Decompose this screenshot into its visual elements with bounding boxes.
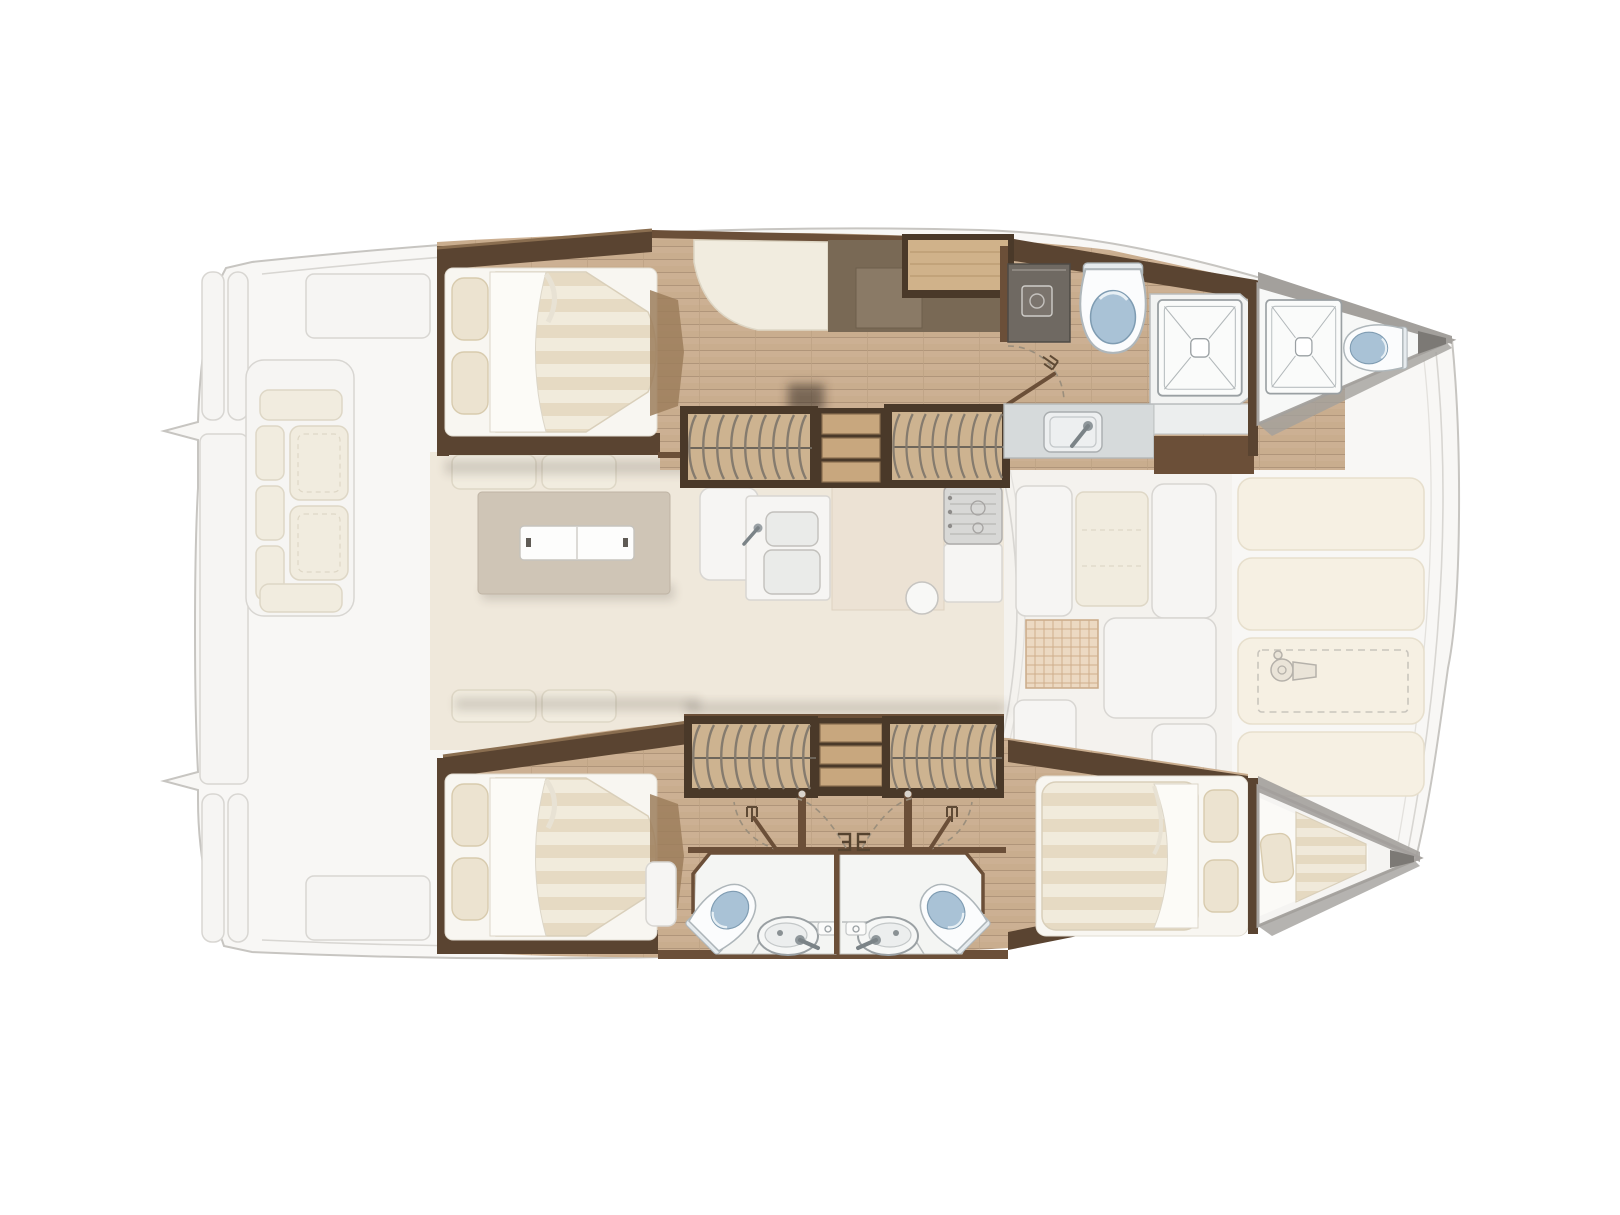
stbd-forward-cabin (1036, 776, 1258, 936)
transom-step (228, 272, 248, 420)
deck-locker (306, 876, 430, 940)
stbd-bathroom-forward (838, 853, 993, 957)
sunpad (1238, 638, 1424, 724)
shower-tray (1266, 300, 1341, 394)
pillow (452, 858, 488, 920)
bathroom-divider (834, 853, 840, 954)
galley-sink-basin (766, 512, 818, 546)
door-post (904, 792, 912, 852)
companionway-steps (818, 408, 884, 488)
deck-locker (306, 274, 430, 338)
vanity (1004, 404, 1154, 458)
pillow (452, 784, 488, 846)
port-aft-cabin (445, 268, 684, 436)
pillow (1204, 860, 1238, 912)
washbasin (758, 917, 818, 955)
port-hull (437, 230, 1452, 488)
swim-platform (200, 434, 248, 784)
washbasin (858, 917, 918, 955)
galley (744, 486, 1002, 614)
cockpit-seat (1016, 486, 1072, 616)
cockpit-cream-seat (1076, 492, 1148, 606)
hanging-locker (884, 404, 1010, 488)
galley-sink-basin (764, 550, 820, 594)
catamaran-layout-plan (0, 0, 1620, 1215)
toilet (1080, 263, 1146, 353)
pillow (1260, 833, 1295, 884)
hull-shadow (455, 698, 700, 710)
sofa-back-cushion (256, 486, 284, 540)
sunpad (1238, 478, 1424, 550)
hull-shadow (686, 702, 1006, 714)
stove (944, 486, 1002, 544)
companionway-steps (816, 718, 886, 796)
transom-step (202, 794, 224, 942)
cabin-seat (646, 862, 676, 926)
floorplan-canvas (0, 0, 1620, 1215)
sofa-cushion (260, 584, 342, 612)
door-post (798, 792, 806, 852)
aft-cockpit-sofa (246, 360, 354, 616)
sofa-back-cushion (256, 426, 284, 480)
round-basin (906, 582, 938, 614)
transom-step (202, 272, 224, 420)
pillow (1204, 790, 1238, 842)
hanging-locker (882, 716, 1004, 798)
sofa-cushion (260, 390, 342, 420)
port-corridor-furniture (694, 234, 1014, 332)
bathroom-wall (1000, 246, 1008, 342)
sunpad (1238, 558, 1424, 630)
transom-steps (200, 272, 248, 942)
stbd-aft-cabin (445, 774, 684, 940)
vanity-ledge (1154, 404, 1254, 434)
cockpit-seat (1104, 618, 1216, 718)
stbd-bathroom-aft (683, 853, 838, 957)
transom-step (228, 794, 248, 942)
bathroom-cabinet (1154, 436, 1254, 474)
serving-tray (520, 526, 634, 560)
hanging-locker (684, 716, 818, 798)
shelf (846, 922, 866, 935)
woven-table (1026, 620, 1098, 688)
storage-shelf (902, 234, 1014, 298)
pillow (452, 278, 488, 340)
washing-machine (1008, 264, 1070, 342)
hanging-locker (680, 406, 818, 488)
cockpit-seat (1152, 484, 1216, 618)
galley-counter (944, 544, 1002, 602)
pillow (452, 352, 488, 414)
stbd-wardrobes (684, 716, 1004, 798)
shower-tray (1158, 300, 1242, 396)
floor-step (650, 290, 684, 416)
toilet (1344, 325, 1407, 371)
